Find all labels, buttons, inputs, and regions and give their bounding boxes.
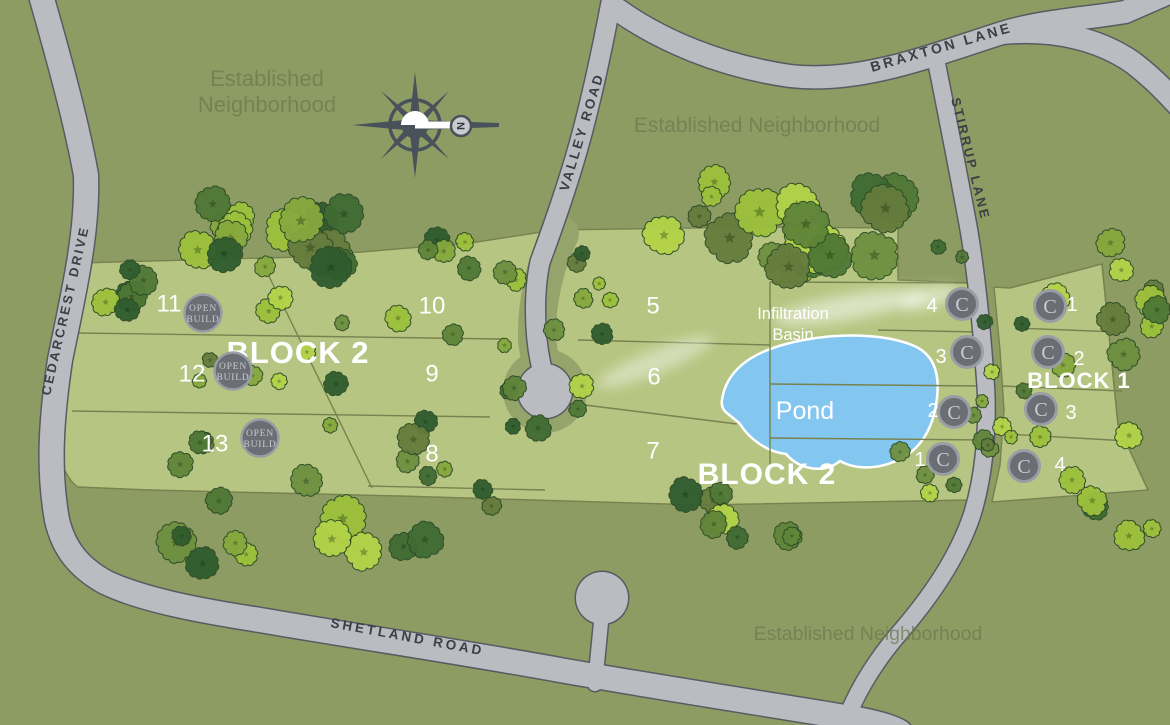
community-marker-badge[interactable]: C bbox=[1009, 451, 1040, 482]
established-neighborhood-nw-line1: Established bbox=[210, 66, 324, 91]
community-marker-letter: C bbox=[947, 402, 960, 424]
open-build-badge[interactable]: OPENBUILD bbox=[215, 353, 252, 390]
community-marker-badge[interactable]: C bbox=[1026, 394, 1057, 425]
open-build-text-line1: OPEN bbox=[189, 304, 217, 314]
open-build-text-line1: OPEN bbox=[246, 429, 274, 439]
open-build-badge[interactable]: OPENBUILD bbox=[185, 295, 222, 332]
lot-number-block2_mid_east-5: 5 bbox=[646, 292, 659, 319]
lot-number-block1-3: 3 bbox=[1065, 402, 1076, 424]
community-marker-letter: C bbox=[1041, 342, 1054, 364]
community-marker-letter: C bbox=[955, 294, 968, 316]
lot-number-block2_mid-10: 10 bbox=[419, 292, 446, 319]
lot-number-block2_east-3: 3 bbox=[935, 346, 946, 368]
community-marker-letter: C bbox=[936, 449, 949, 471]
community-marker-letter: C bbox=[1034, 399, 1047, 421]
lot-number-block2_mid-9: 9 bbox=[425, 360, 438, 387]
lot-number-block2_east-4: 4 bbox=[926, 295, 937, 317]
established-neighborhood-south: Established Neighborhood bbox=[754, 623, 983, 645]
open-build-text-line2: BUILD bbox=[216, 373, 249, 383]
infiltration-basin-label-line1: Infiltration bbox=[757, 305, 829, 323]
block2-south-label: BLOCK 2 bbox=[698, 458, 837, 491]
community-marker-letter: C bbox=[960, 342, 973, 364]
community-marker-letter: C bbox=[1043, 296, 1056, 318]
lot-number-block1-2: 2 bbox=[1073, 348, 1084, 370]
open-build-text-line1: OPEN bbox=[219, 362, 247, 372]
compass-north-letter: N bbox=[454, 122, 466, 130]
open-build-text-line2: BUILD bbox=[243, 440, 276, 450]
road-stub bbox=[595, 612, 602, 684]
lot-number-block2_east-2: 2 bbox=[927, 400, 938, 422]
established-neighborhood-nw-line2: Neighborhood bbox=[198, 92, 336, 117]
lot-number-block1-1: 1 bbox=[1066, 294, 1077, 316]
community-marker-badge[interactable]: C bbox=[1035, 291, 1066, 322]
community-marker-badge[interactable]: C bbox=[947, 289, 978, 320]
lot-number-block2_left-12: 12 bbox=[179, 360, 206, 387]
lot-number-block2_left-13: 13 bbox=[202, 430, 229, 457]
community-marker-letter: C bbox=[1017, 456, 1030, 478]
community-marker-badge[interactable]: C bbox=[928, 444, 959, 475]
site-plan-map: Established Neighborhood Established Nei… bbox=[0, 0, 1170, 725]
lot-number-block2_mid_east-7: 7 bbox=[646, 437, 659, 464]
infiltration-basin-label-line2: Basin bbox=[772, 326, 813, 344]
lot-number-block2_mid-8: 8 bbox=[425, 440, 438, 467]
open-build-text-line2: BUILD bbox=[186, 315, 219, 325]
lot-number-block2_east-1: 1 bbox=[914, 449, 925, 471]
lot-number-block1-4: 4 bbox=[1054, 454, 1065, 476]
established-neighborhood-north: Established Neighborhood bbox=[634, 114, 880, 137]
lot-number-block2_left-11: 11 bbox=[157, 290, 182, 317]
community-marker-badge[interactable]: C bbox=[952, 337, 983, 368]
lot-number-block2_mid_east-6: 6 bbox=[647, 363, 660, 390]
community-marker-badge[interactable]: C bbox=[939, 397, 970, 428]
pond-label: Pond bbox=[776, 397, 834, 425]
block1-label: BLOCK 1 bbox=[1027, 368, 1131, 393]
community-marker-badge[interactable]: C bbox=[1033, 337, 1064, 368]
open-build-badge[interactable]: OPENBUILD bbox=[242, 420, 279, 457]
